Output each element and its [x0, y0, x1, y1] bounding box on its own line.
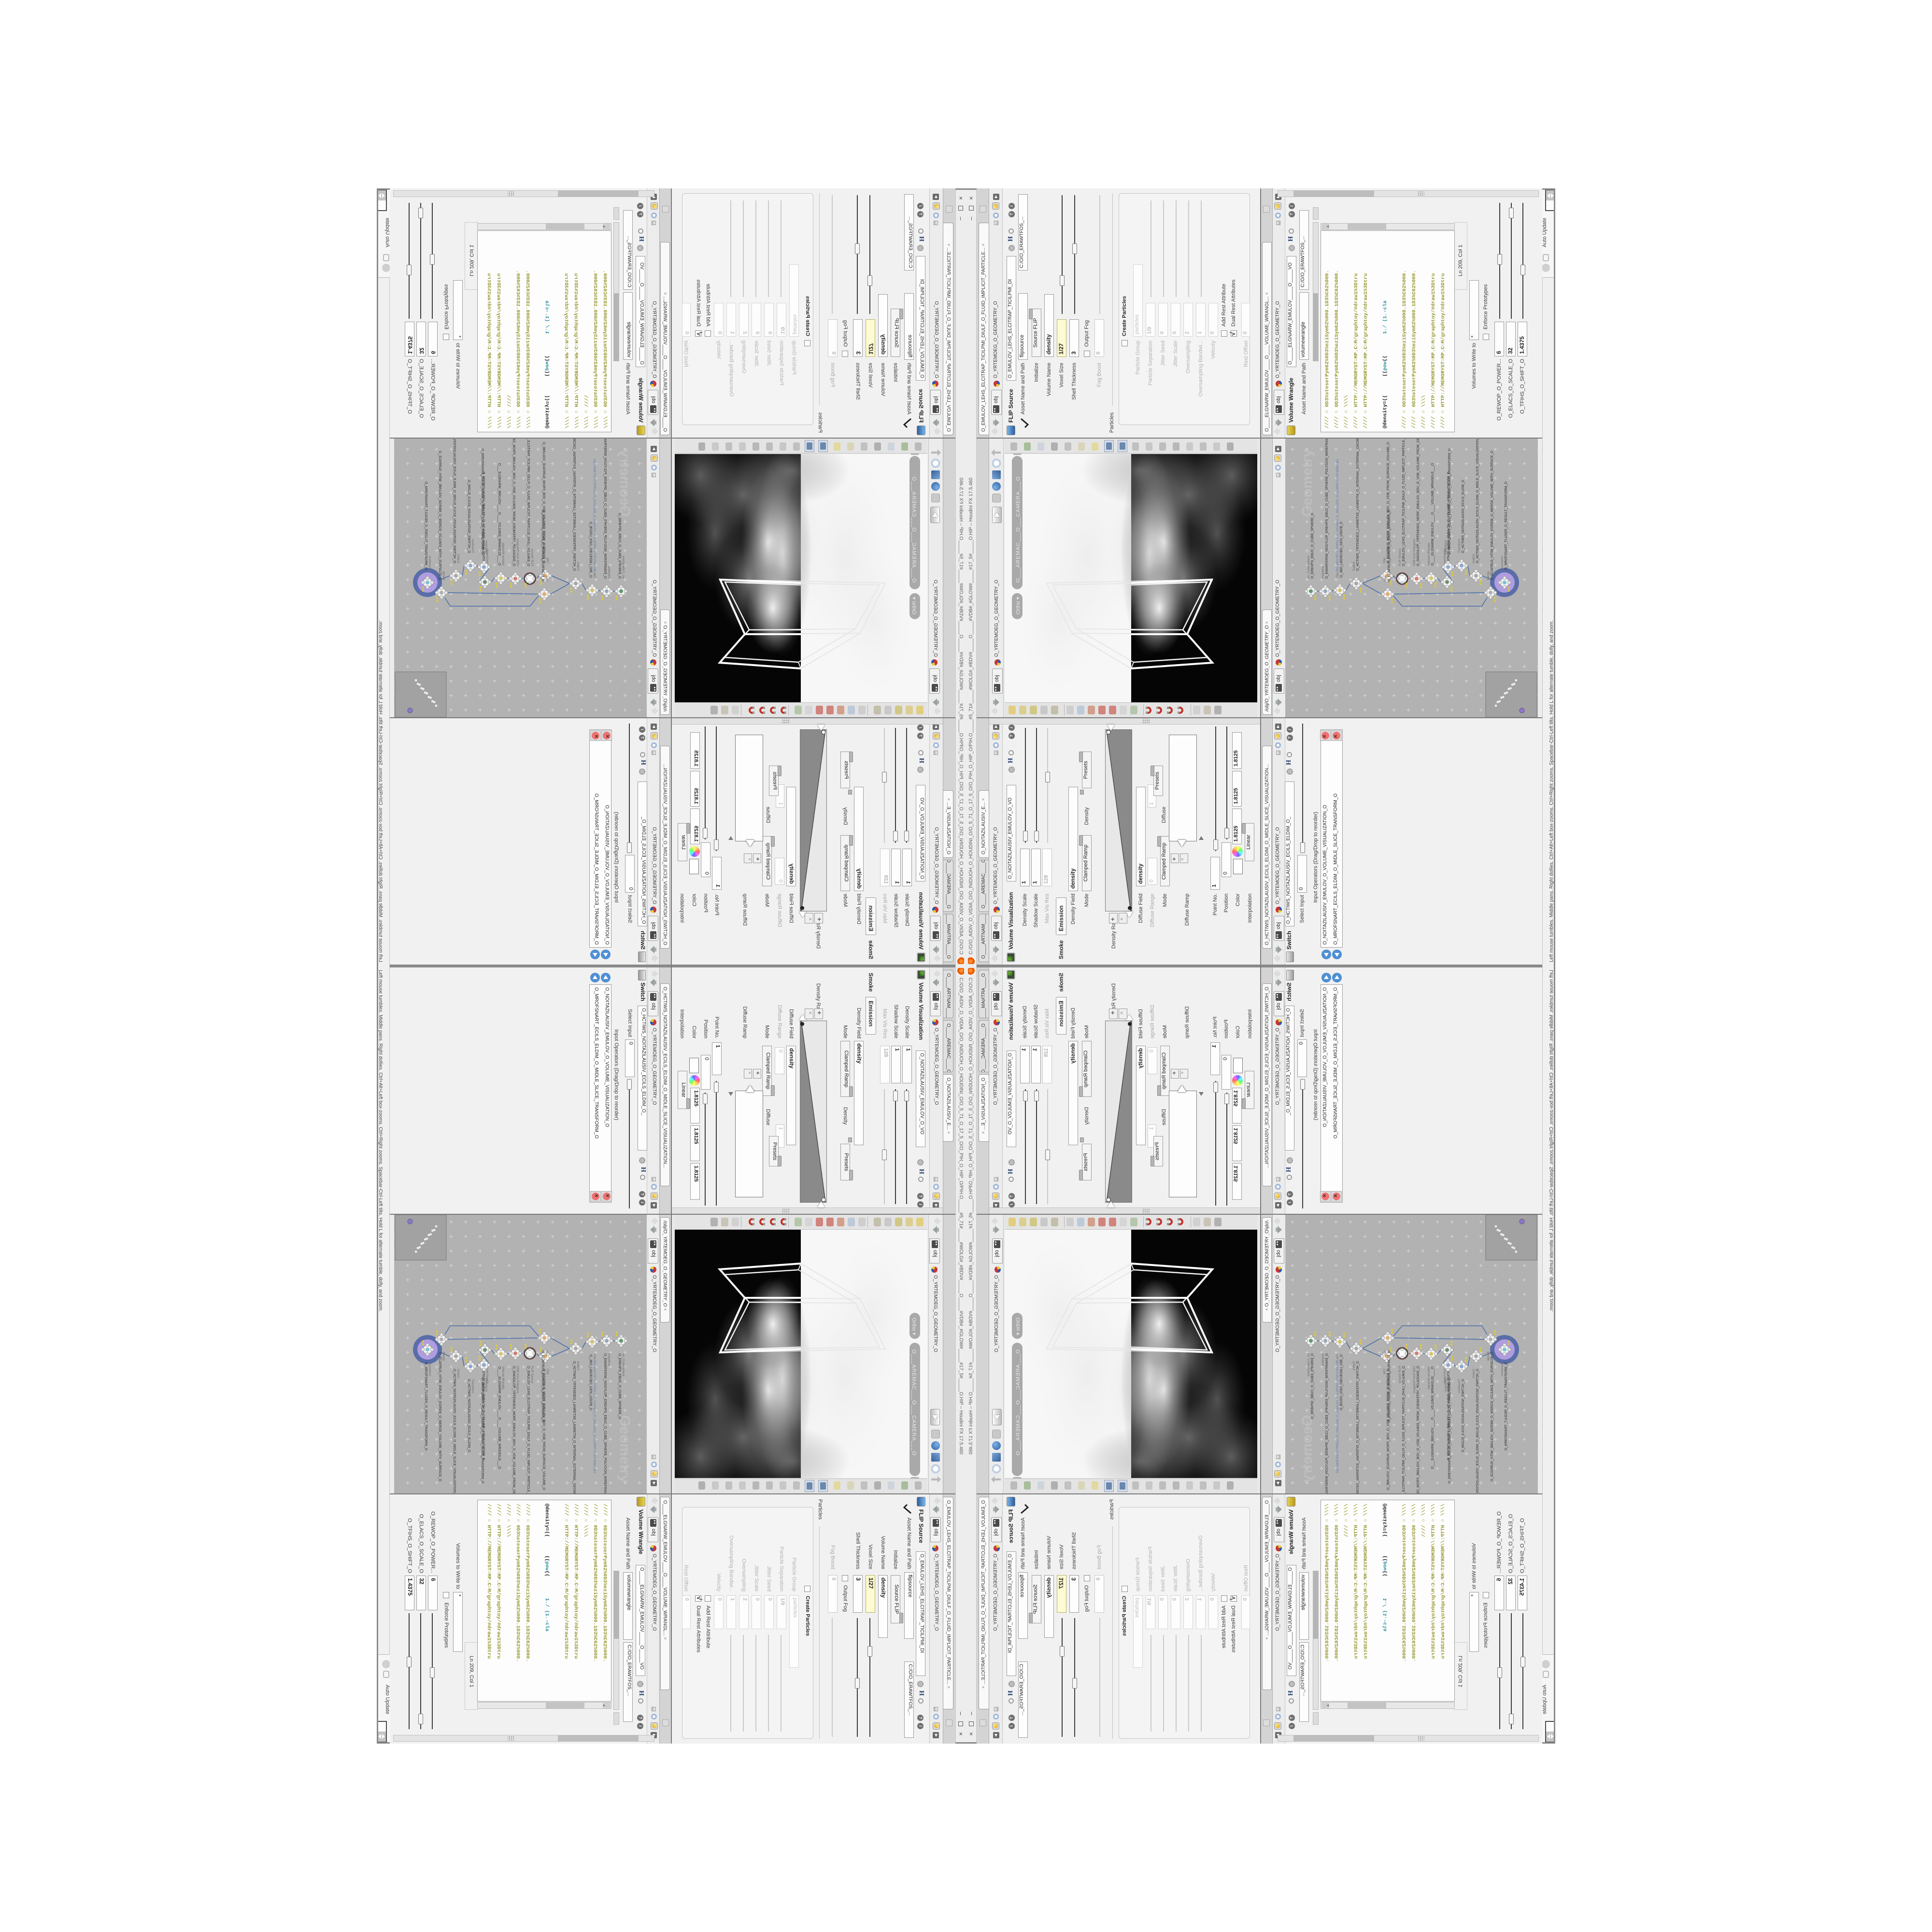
- svg-text:O_HCTIWS_YRTEMOEG_LANRETXE_LAN: O_HCTIWS_YRTEMOEG_LANRETXE_LANRETNI_O_IN…: [1356, 1361, 1360, 1493]
- svg-text:O_JBO_LBD/ECBO_GEN_USO/B_D: O_JBO_LBD/ECBO_GEN_USO/B_D: [1340, 1354, 1343, 1410]
- svg-text:O____ELGNARW_EMULOV____O____VO: O____ELGNARW_EMULOV____O____VOLUME_WRANG…: [1431, 1366, 1435, 1469]
- svg-text:O_ECAFRUS_HTIW_EMULOV_EGREM_O_: O_ECAFRUS_HTIW_EMULOV_EGREM_O_MERGE_VOLU…: [438, 1352, 441, 1482]
- svg-text:O_EMULOV_LEHS_ELCITRAP_TICILPM: O_EMULOV_LEHS_ELCITRAP_TICILPMI_DIULF_O_…: [526, 1366, 530, 1493]
- svg-text:FLIP Source: FLIP Source: [530, 1366, 534, 1383]
- svg-text:Geometry: Geometry: [617, 1415, 633, 1483]
- svg-text:Transform: Transform: [1458, 539, 1461, 553]
- svg-text:Transform: Transform: [484, 1378, 488, 1392]
- svg-text:an_CubeSphere: an_CubeSphere: [622, 1353, 625, 1377]
- svg-text:O_EMULOV_LEHS_ELCITRAP_TICILPM: O_EMULOV_LEHS_ELCITRAP_TICILPMI_DIULF_O_…: [1402, 1366, 1406, 1493]
- svg-text:O_HCTIWS_NOITAZILAUSIV_ECILS_E: O_HCTIWS_NOITAZILAUSIV_ECILS_ELDIM_O_MID…: [1476, 439, 1479, 563]
- svg-text:Volume Wrangle: Volume Wrangle: [1427, 1366, 1431, 1390]
- svg-text:O_EMARFERIW_NOGYLOP_EREHPS_EBU: O_EMARFERIW_NOGYLOP_EREHPS_EBUC_O_CUBE_S…: [1325, 1353, 1329, 1493]
- svg-text:O____ELGNARW_EMULOV____O____VO: O____ELGNARW_EMULOV____O____VOLUME_WRANG…: [497, 1366, 501, 1469]
- svg-text:Volume Wrangle: Volume Wrangle: [501, 1366, 505, 1390]
- svg-text:Transform: Transform: [428, 556, 431, 570]
- svg-text:O_SNOGILOP_YRTEMOEG_MORF_EMULO: O_SNOGILOP_YRTEMOEG_MORF_EMULOV_BDV_O_VD…: [1417, 1366, 1420, 1493]
- svg-text:O_SNOGILOP_YRTEMOEG_MORF_EMULO: O_SNOGILOP_YRTEMOEG_MORF_EMULOV_BDV_O_VD…: [1417, 439, 1420, 566]
- svg-text:an_CubeSphere: an_CubeSphere: [1307, 555, 1310, 579]
- svg-text:Clip: Clip: [1384, 576, 1387, 582]
- svg-text:an_CubeSphere: an_CubeSphere: [622, 555, 625, 579]
- svg-text:Switch: Switch: [456, 554, 460, 563]
- svg-text:Transform: Transform: [428, 1362, 431, 1376]
- svg-text:Clip: Clip: [1383, 557, 1386, 563]
- svg-text:VDB from Polygons: VDB from Polygons: [516, 1366, 519, 1393]
- svg-text:Clip: Clip: [546, 1369, 549, 1375]
- svg-text:Switch: Switch: [1352, 561, 1356, 571]
- svg-text:Clip: Clip: [546, 557, 549, 563]
- svg-text:Geometry: Geometry: [1299, 449, 1315, 517]
- svg-text:VDB from Polygons: VDB from Polygons: [1413, 539, 1416, 566]
- svg-text:Switch: Switch: [1472, 554, 1476, 563]
- svg-text:Transform: Transform: [471, 539, 474, 553]
- svg-text:O_HCTIWS_NOITAZILAUSIV_ECILS_E: O_HCTIWS_NOITAZILAUSIV_ECILS_ELDIM_O: [467, 480, 470, 553]
- svg-text:PolyWire: PolyWire: [1321, 1353, 1325, 1366]
- svg-text:Transform: Transform: [1458, 1379, 1461, 1393]
- svg-text:Geometry: Geometry: [617, 449, 633, 517]
- svg-text:VDB from Polygons: VDB from Polygons: [516, 539, 519, 566]
- svg-text:Transform: Transform: [471, 1379, 474, 1393]
- svg-text:Transform: Transform: [1501, 1362, 1504, 1376]
- svg-text:File: File: [593, 1354, 596, 1360]
- svg-text:Transform: Transform: [1501, 556, 1504, 570]
- svg-text:Transform: Transform: [1444, 540, 1448, 554]
- svg-text:O_HCTIWS_NOITAZILAUSIV_ECILS_E: O_HCTIWS_NOITAZILAUSIV_ECILS_ELDIM_O_MID…: [453, 1369, 456, 1493]
- svg-text:File: File: [1336, 1354, 1339, 1360]
- svg-text:O_EMULOV_LEHS_ELCITRAP_TICILPM: O_EMULOV_LEHS_ELCITRAP_TICILPMI_DIULF_O_…: [1402, 439, 1406, 566]
- svg-text:O_EREHPS_EBUC_O_CUBE_SPHERE_O: O_EREHPS_EBUC_O_CUBE_SPHERE_O: [1311, 512, 1314, 579]
- svg-text:Clip: Clip: [545, 1350, 548, 1356]
- svg-text:O_SNOGILOP_YRTEMOEG_MORF_EMULO: O_SNOGILOP_YRTEMOEG_MORF_EMULOV_BDV_O_VD…: [512, 439, 515, 566]
- svg-text:FLIP Source: FLIP Source: [530, 549, 534, 566]
- svg-text:File: File: [593, 572, 596, 578]
- svg-text:O_MROFSNART_ECILS_ELDIM_O_MIDL: O_MROFSNART_ECILS_ELDIM_O_MIDLE_SLICE_TR…: [1448, 1378, 1451, 1484]
- svg-text:Clip: Clip: [1383, 1369, 1386, 1375]
- svg-text:Switch: Switch: [576, 1361, 580, 1371]
- svg-text:Clip: Clip: [545, 576, 548, 582]
- svg-text:Merge: Merge: [1487, 1352, 1490, 1361]
- svg-text:O_ECAFRUS_HTIW_EMULOV_EGREM_O_: O_ECAFRUS_HTIW_EMULOV_EGREM_O_MERGE_VOLU…: [1491, 1352, 1494, 1482]
- svg-text:Merge: Merge: [442, 571, 445, 580]
- svg-text:O_HCTIWS_YRTEMOEG_LANRETXE_LAN: O_HCTIWS_YRTEMOEG_LANRETXE_LANRETNI_O_IN…: [572, 1361, 576, 1493]
- svg-text:O_ECAFRUS_HTIW_EMULOV_EGREM_O_: O_ECAFRUS_HTIW_EMULOV_EGREM_O_MERGE_VOLU…: [1491, 450, 1494, 580]
- svg-text:Geometry: Geometry: [1299, 1415, 1315, 1483]
- svg-text:Switch: Switch: [456, 1369, 460, 1378]
- svg-text:VDB from Polygons: VDB from Polygons: [1413, 1366, 1416, 1393]
- svg-text:Volume Wrangle: Volume Wrangle: [1427, 542, 1431, 566]
- svg-text:PolyWire: PolyWire: [607, 566, 611, 579]
- svg-text:O_EREHPS_EBUC_O_CUBE_SPHERE_O: O_EREHPS_EBUC_O_CUBE_SPHERE_O: [618, 512, 621, 579]
- svg-text:O_JBO_LBD/ECBO_GEN_USO/B_D: O_JBO_LBD/ECBO_GEN_USO/B_D: [589, 1354, 592, 1410]
- svg-text:Merge: Merge: [442, 1352, 445, 1361]
- svg-text:O_EMULOV_LEHS_ELCITRAP_TICILPM: O_EMULOV_LEHS_ELCITRAP_TICILPMI_DIULF_O_…: [526, 439, 530, 566]
- svg-text:O_ECAFRUS_EGREM_O_DIULF_ECRUOS: O_ECAFRUS_EGREM_O_DIULF_ECRUOS_O: [1388, 1350, 1391, 1423]
- svg-text:an_CubeSphere: an_CubeSphere: [1307, 1353, 1310, 1377]
- svg-text:O_EMARFERIW_NOGYLOP_EREHPS_EBU: O_EMARFERIW_NOGYLOP_EREHPS_EBUC_O_CUBE_S…: [603, 1353, 607, 1493]
- svg-text:O_EMARFERIW_NOGYLOP_EREHPS_EBU: O_EMARFERIW_NOGYLOP_EREHPS_EBUC_O_CUBE_S…: [603, 439, 607, 579]
- svg-text:O____ELGNARW_EMULOV____O____VO: O____ELGNARW_EMULOV____O____VOLUME_WRANG…: [1431, 463, 1435, 566]
- svg-text:O_MROFSNART_ECILS_ELDIM_O_MIDL: O_MROFSNART_ECILS_ELDIM_O_MIDLE_SLICE_TR…: [481, 1378, 484, 1484]
- svg-text:FLIP Source: FLIP Source: [1398, 549, 1402, 566]
- svg-text:O_HCTIWS_YRTEMOEG_LANRETXE_LAN: O_HCTIWS_YRTEMOEG_LANRETXE_LANRETNI_O_IN…: [572, 439, 576, 571]
- svg-text:Switch: Switch: [1352, 1361, 1356, 1371]
- svg-text:File: File: [1336, 572, 1339, 578]
- svg-text:Switch: Switch: [576, 561, 580, 571]
- svg-text:O_MROFSNART_ECILS_ELDIM_O_MIDL: O_MROFSNART_ECILS_ELDIM_O_MIDLE_SLICE_TR…: [1448, 448, 1451, 554]
- svg-text:PolyWire: PolyWire: [1321, 566, 1325, 579]
- svg-text:PolyWire: PolyWire: [607, 1353, 611, 1366]
- svg-text:O_HCTIWS_NOITAZILAUSIV_ECILS_E: O_HCTIWS_NOITAZILAUSIV_ECILS_ELDIM_O_MID…: [453, 439, 456, 563]
- svg-text:O_EMARFERIW_NOGYLOP_EREHPS_EBU: O_EMARFERIW_NOGYLOP_EREHPS_EBUC_O_CUBE_S…: [1325, 439, 1329, 579]
- svg-text:Transform: Transform: [1444, 1378, 1448, 1392]
- svg-text:O_MROFSNART_ECILS_ELDIM_O_MIDL: O_MROFSNART_ECILS_ELDIM_O_MIDLE_SLICE_TR…: [481, 448, 484, 554]
- svg-text:Volume Wrangle: Volume Wrangle: [501, 542, 505, 566]
- svg-text:O_MROFSNART_TLUSER_O_RESULT_TR: O_MROFSNART_TLUSER_O_RESULT_TRANSFORM_O: [1505, 1362, 1508, 1450]
- svg-text:O_HCTIWS_NOITAZILAUSIV_ECILS_E: O_HCTIWS_NOITAZILAUSIV_ECILS_ELDIM_O: [467, 1379, 470, 1452]
- svg-text:Switch: Switch: [1472, 1369, 1476, 1378]
- svg-text:O_HCTIWS_NOITAZILAUSIV_ECILS_E: O_HCTIWS_NOITAZILAUSIV_ECILS_ELDIM_O_MID…: [1476, 1369, 1479, 1493]
- svg-text:O_HCTIWS_NOITAZILAUSIV_ECILS_E: O_HCTIWS_NOITAZILAUSIV_ECILS_ELDIM_O: [1462, 480, 1465, 553]
- svg-text:O____ELGNARW_EMULOV____O____VO: O____ELGNARW_EMULOV____O____VOLUME_WRANG…: [497, 463, 501, 566]
- svg-text:Merge: Merge: [1487, 571, 1490, 580]
- svg-text:FLIP Source: FLIP Source: [1398, 1366, 1402, 1383]
- svg-text:O_SNOGILOP_YRTEMOEG_MORF_EMULO: O_SNOGILOP_YRTEMOEG_MORF_EMULOV_BDV_O_VD…: [512, 1366, 515, 1493]
- svg-text:O_ECAFRUS_EGREM_O_DIULF_ECRUOS: O_ECAFRUS_EGREM_O_DIULF_ECRUOS_O: [541, 1350, 544, 1423]
- svg-text:O_ECAFRUS_HTIW_EMULOV_EGREM_O_: O_ECAFRUS_HTIW_EMULOV_EGREM_O_MERGE_VOLU…: [438, 450, 441, 580]
- svg-text:O_JBO_LBD/ECBO_GEN_USO/B_D: O_JBO_LBD/ECBO_GEN_USO/B_D: [589, 522, 592, 578]
- svg-text:O_MROFSNART_TLUSER_O_RESULT_TR: O_MROFSNART_TLUSER_O_RESULT_TRANSFORM_O: [424, 1362, 427, 1450]
- svg-text:Clip: Clip: [1384, 1350, 1387, 1356]
- svg-text:O_JBO_LBD/ECBO_GEN_USO/B_D: O_JBO_LBD/ECBO_GEN_USO/B_D: [1340, 522, 1343, 578]
- svg-text:O_MROFSNART_TLUSER_O_RESULT_TR: O_MROFSNART_TLUSER_O_RESULT_TRANSFORM_O: [1505, 482, 1508, 570]
- svg-text:O_ECAFRUS_EGREM_O_DIULF_ECRUOS: O_ECAFRUS_EGREM_O_DIULF_ECRUOS_O: [541, 509, 544, 582]
- svg-text:O_EREHPS_EBUC_O_CUBE_SPHERE_O: O_EREHPS_EBUC_O_CUBE_SPHERE_O: [1311, 1353, 1314, 1420]
- svg-text:O_HCTIWS_YRTEMOEG_LANRETXE_LAN: O_HCTIWS_YRTEMOEG_LANRETXE_LANRETNI_O_IN…: [1356, 439, 1360, 571]
- svg-text:O_MROFSNART_TLUSER_O_RESULT_TR: O_MROFSNART_TLUSER_O_RESULT_TRANSFORM_O: [424, 482, 427, 570]
- svg-text:O_ECAFRUS_EGREM_O_DIULF_ECRUOS: O_ECAFRUS_EGREM_O_DIULF_ECRUOS_O: [1388, 509, 1391, 582]
- svg-text:O_EREHPS_EBUC_O_CUBE_SPHERE_O: O_EREHPS_EBUC_O_CUBE_SPHERE_O: [618, 1353, 621, 1420]
- svg-text:Transform: Transform: [484, 540, 488, 554]
- svg-text:O_HCTIWS_NOITAZILAUSIV_ECILS_E: O_HCTIWS_NOITAZILAUSIV_ECILS_ELDIM_O: [1462, 1379, 1465, 1452]
